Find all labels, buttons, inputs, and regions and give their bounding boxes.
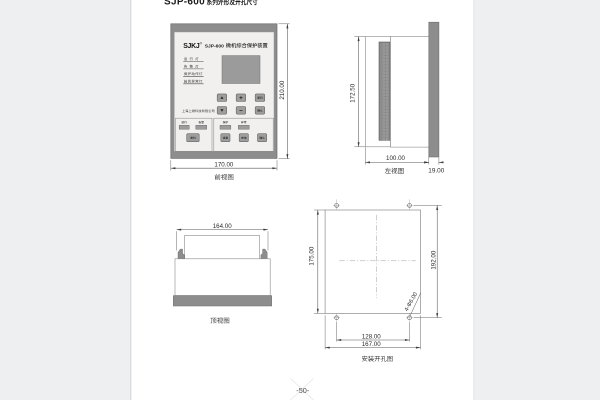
svg-text:-50-: -50- [296,386,310,395]
svg-text:210.00: 210.00 [279,80,286,99]
svg-text:175.00: 175.00 [308,246,315,265]
svg-text:128.00: 128.00 [362,334,381,341]
svg-text:172.50: 172.50 [350,83,357,102]
svg-text:SJP-600: SJP-600 [205,43,224,49]
svg-text:170.00: 170.00 [214,161,233,168]
svg-text:100.00: 100.00 [386,155,405,162]
svg-text:19.00: 19.00 [428,167,444,174]
svg-text:192.00: 192.00 [430,250,437,269]
svg-text:SJP-600: SJP-600 [164,0,205,8]
svg-text:167.00: 167.00 [362,341,381,348]
svg-text:SJKJ: SJKJ [183,43,200,50]
svg-text:164.00: 164.00 [213,223,232,230]
